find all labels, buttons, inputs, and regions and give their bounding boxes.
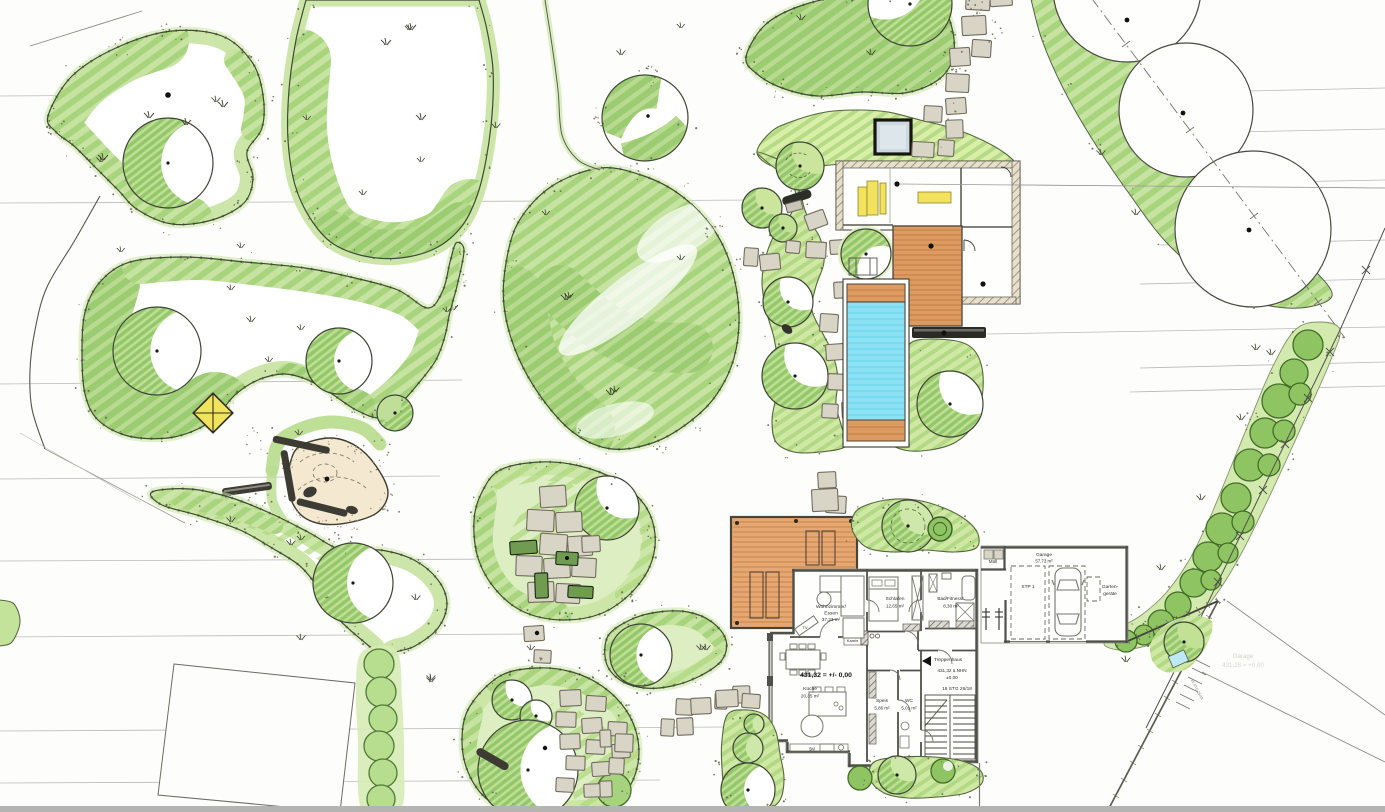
svg-text:WC: WC — [905, 698, 914, 704]
svg-text:5,86 m²: 5,86 m² — [874, 706, 890, 711]
svg-text:20,35 m²: 20,35 m² — [801, 694, 820, 699]
svg-text:12,65 m²: 12,65 m² — [886, 604, 905, 609]
svg-text:Speis: Speis — [876, 698, 889, 704]
svg-text:Bad/Fitnessr.: Bad/Fitnessr. — [937, 596, 964, 601]
svg-text:Garage: Garage — [1233, 653, 1254, 660]
svg-text:Schlafen: Schlafen — [885, 596, 904, 602]
svg-text:Treppenhaus: Treppenhaus — [934, 657, 963, 663]
svg-text:Garten-: Garten- — [1102, 584, 1119, 590]
svg-text:16 STG 26/18: 16 STG 26/18 — [942, 686, 972, 692]
svg-text:5,01 m²: 5,01 m² — [901, 706, 917, 711]
svg-text:Essen: Essen — [824, 611, 838, 617]
svg-text:TV: TV — [802, 625, 807, 630]
svg-text:Wohnzimmer/: Wohnzimmer/ — [816, 604, 847, 610]
svg-text:431,32 ü.NHN: 431,32 ü.NHN — [937, 668, 966, 673]
svg-text:37,23 m²: 37,23 m² — [822, 617, 841, 622]
svg-text:Küche: Küche — [803, 686, 817, 692]
svg-text:±0,00: ±0,00 — [946, 675, 958, 680]
svg-text:STP 1: STP 1 — [1021, 584, 1035, 590]
svg-text:Garage: Garage — [1036, 552, 1052, 558]
svg-text:431,28 = +0,00: 431,28 = +0,00 — [1222, 662, 1264, 669]
svg-text:57,73 m²: 57,73 m² — [1035, 559, 1053, 564]
svg-text:geräte: geräte — [1103, 591, 1117, 597]
svg-text:Kamin: Kamin — [847, 638, 858, 643]
svg-text:5M: 5M — [809, 747, 815, 752]
svg-text:Müll: Müll — [989, 559, 997, 564]
svg-text:8,30 m²: 8,30 m² — [943, 604, 959, 609]
svg-text:431,32 = +/- 0,00: 431,32 = +/- 0,00 — [800, 672, 852, 679]
